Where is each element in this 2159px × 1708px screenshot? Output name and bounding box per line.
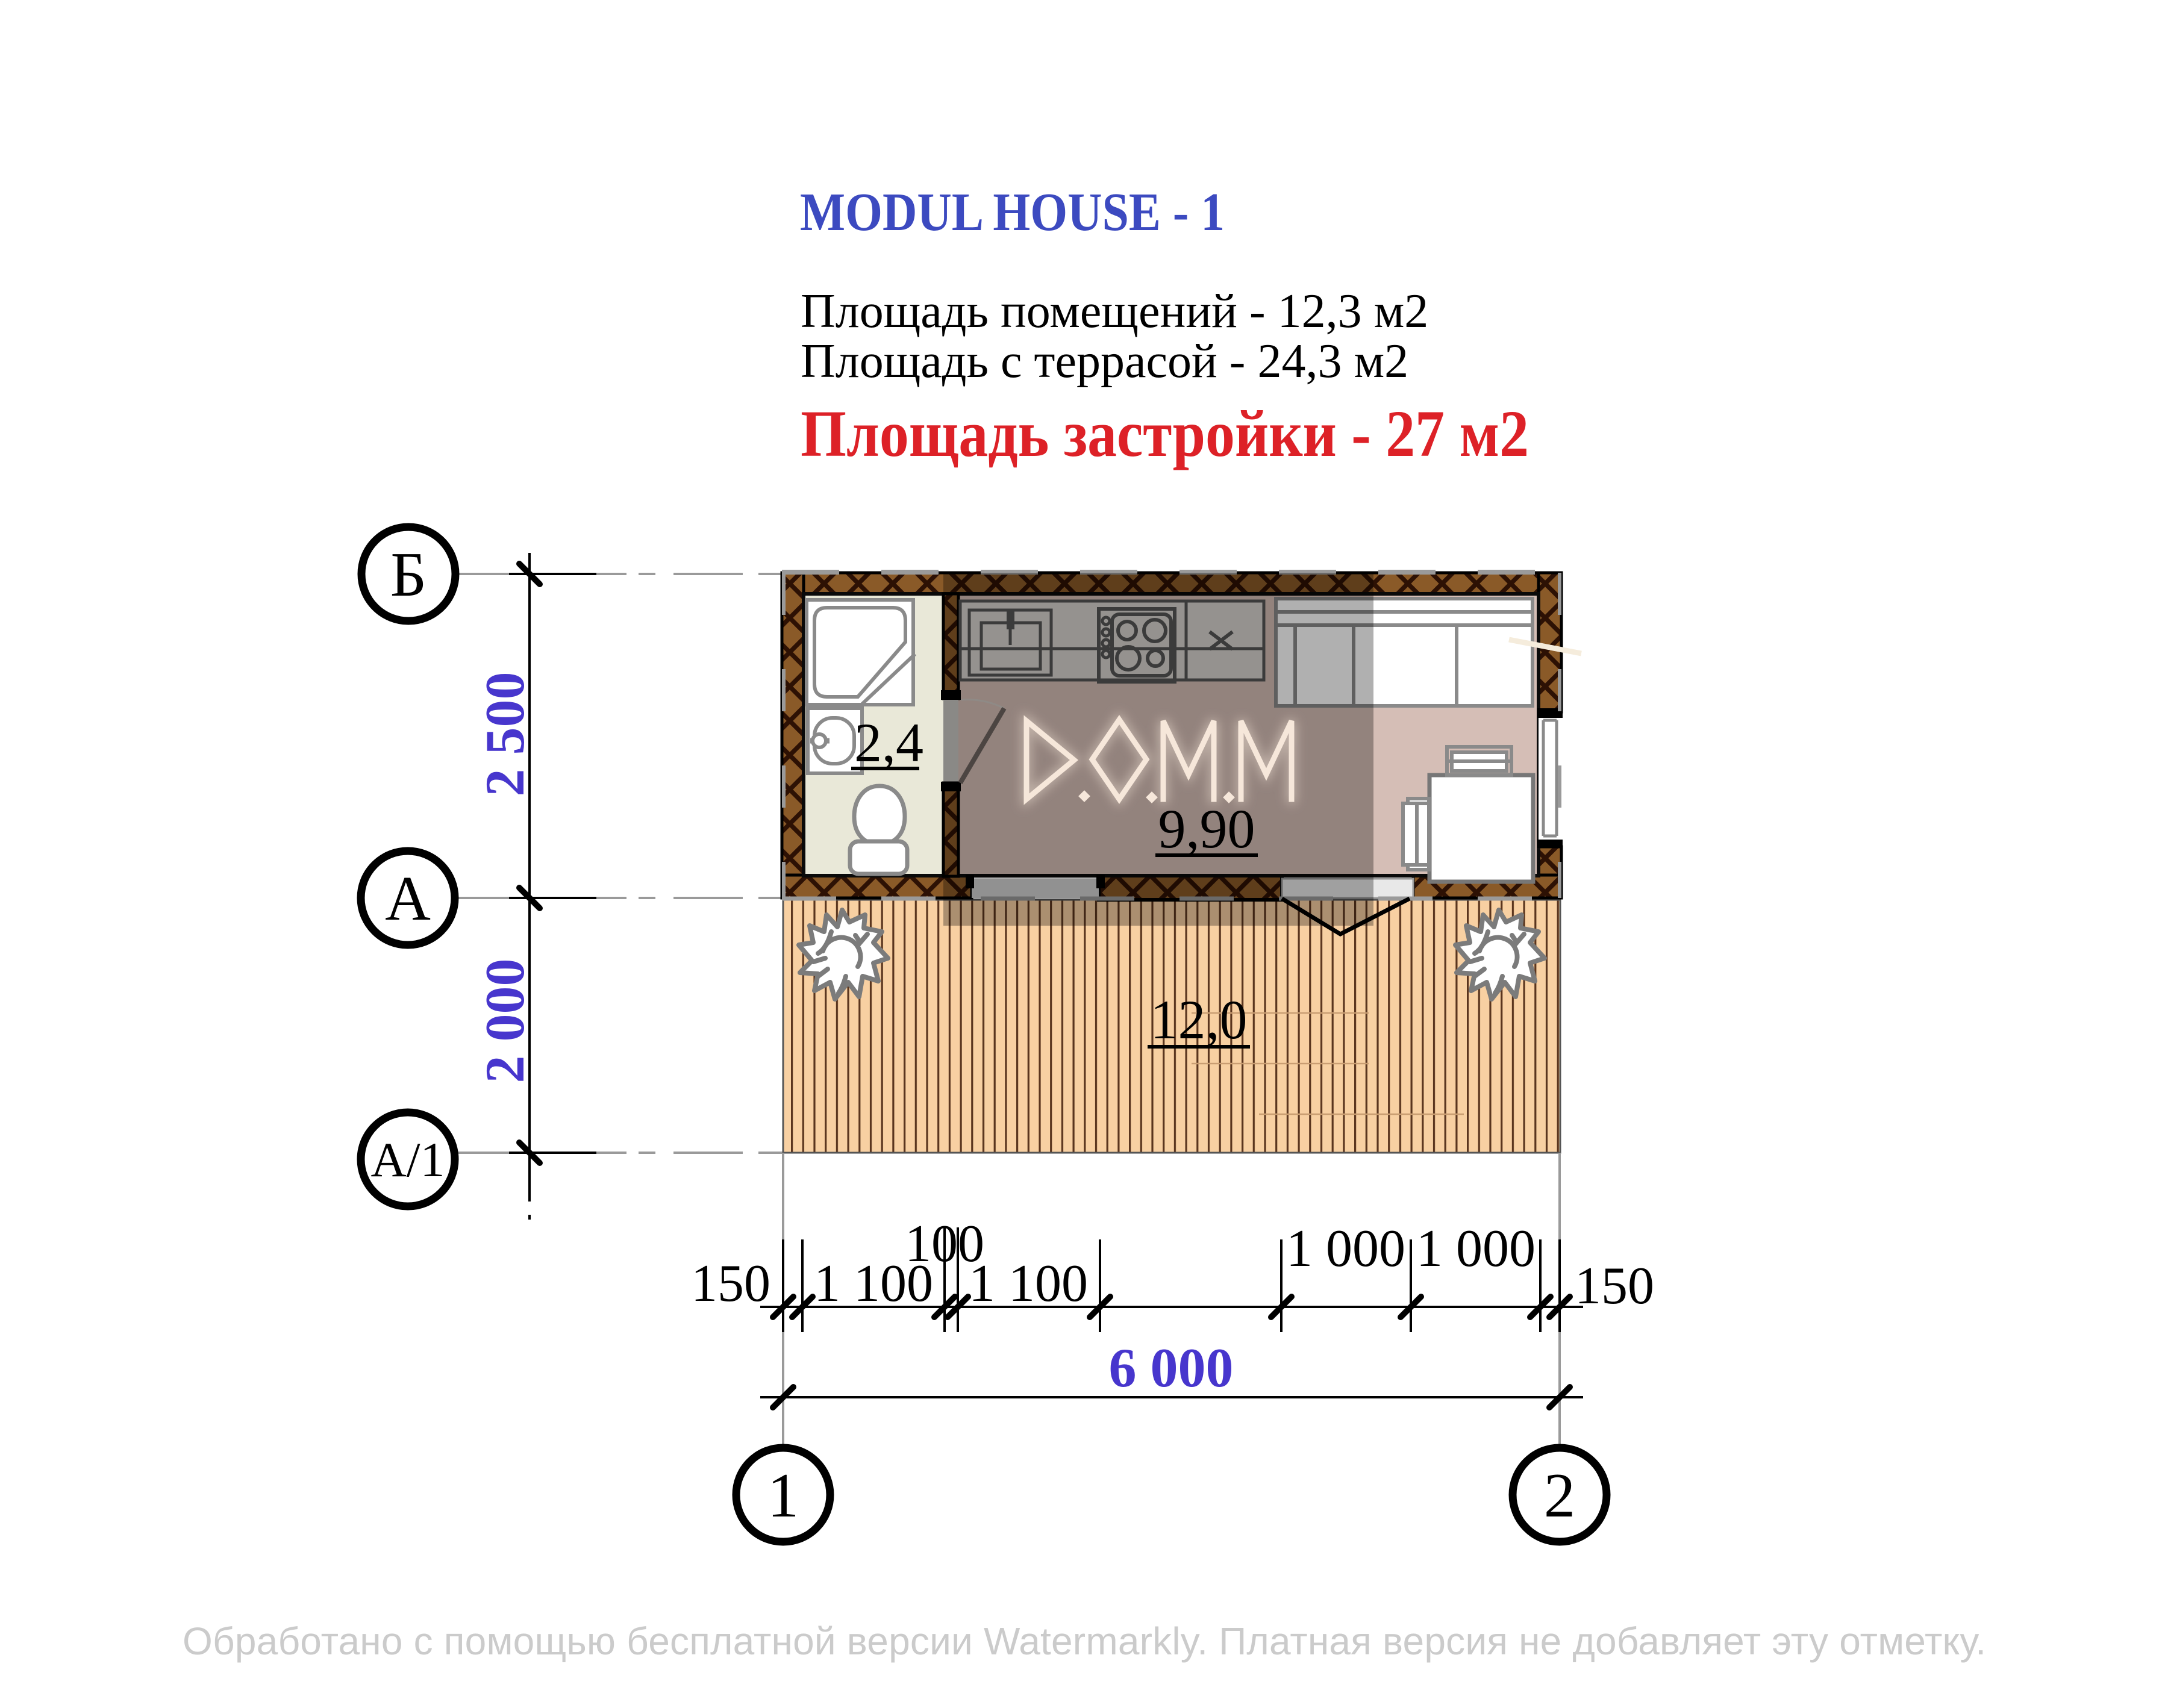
svg-text:Обработано с помощью бесплатно: Обработано с помощью бесплатной версии W…: [183, 1619, 1986, 1663]
svg-text:Б: Б: [390, 539, 426, 609]
svg-text:Площадь застройки - 27 м2: Площадь застройки - 27 м2: [801, 397, 1529, 470]
svg-text:150: 150: [1575, 1257, 1654, 1315]
svg-text:А/1: А/1: [371, 1132, 445, 1187]
svg-text:9,90: 9,90: [1158, 798, 1255, 859]
svg-text:12,0: 12,0: [1151, 989, 1248, 1050]
svg-text:MODUL HOUSE - 1: MODUL HOUSE - 1: [800, 182, 1225, 242]
svg-text:2 000: 2 000: [474, 959, 536, 1083]
svg-text:2 500: 2 500: [474, 672, 536, 797]
svg-text:150: 150: [691, 1255, 770, 1313]
svg-text:6 000: 6 000: [1109, 1337, 1234, 1398]
svg-text:1 000: 1 000: [1416, 1220, 1536, 1278]
svg-text:Площадь помещений - 12,3 м2: Площадь помещений - 12,3 м2: [801, 285, 1428, 338]
svg-text:Площадь с террасой - 24,3 м2: Площадь с террасой - 24,3 м2: [801, 335, 1408, 388]
svg-text:А: А: [385, 863, 431, 933]
svg-text:1: 1: [767, 1460, 799, 1530]
svg-text:2,4: 2,4: [854, 712, 923, 773]
svg-text:2: 2: [1544, 1460, 1576, 1530]
svg-text:1 000: 1 000: [1286, 1220, 1405, 1278]
svg-text:1 100: 1 100: [969, 1255, 1088, 1313]
